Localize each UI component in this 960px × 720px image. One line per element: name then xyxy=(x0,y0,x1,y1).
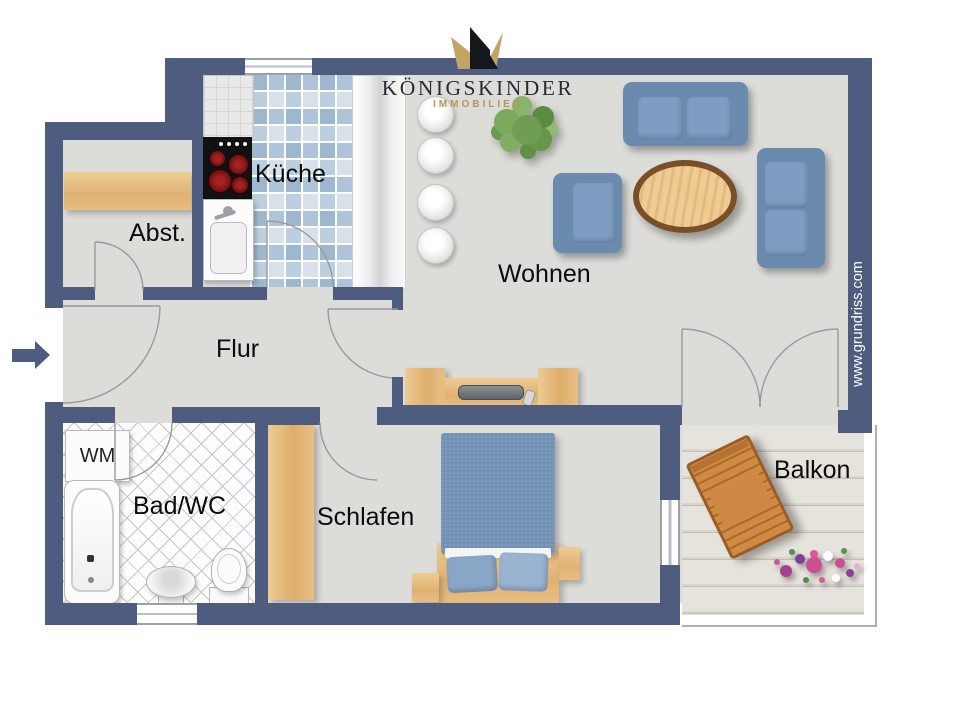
room-label-kueche: Küche xyxy=(255,160,326,189)
crown-icon xyxy=(450,27,506,69)
room-label-flur: Flur xyxy=(216,335,259,364)
room-label-schlafen: Schlafen xyxy=(317,503,414,532)
floor-plan: WM xyxy=(0,0,960,720)
room-label-wohnen: Wohnen xyxy=(498,260,591,289)
brand-tagline: IMMOBILIEN xyxy=(378,99,578,110)
brand-name: KÖNIGSKINDER xyxy=(378,76,578,101)
watermark: www.grundriss.com xyxy=(849,229,868,419)
room-label-bad: Bad/WC xyxy=(133,492,226,521)
room-label-abst: Abst. xyxy=(129,219,186,248)
room-label-balkon: Balkon xyxy=(774,456,850,485)
